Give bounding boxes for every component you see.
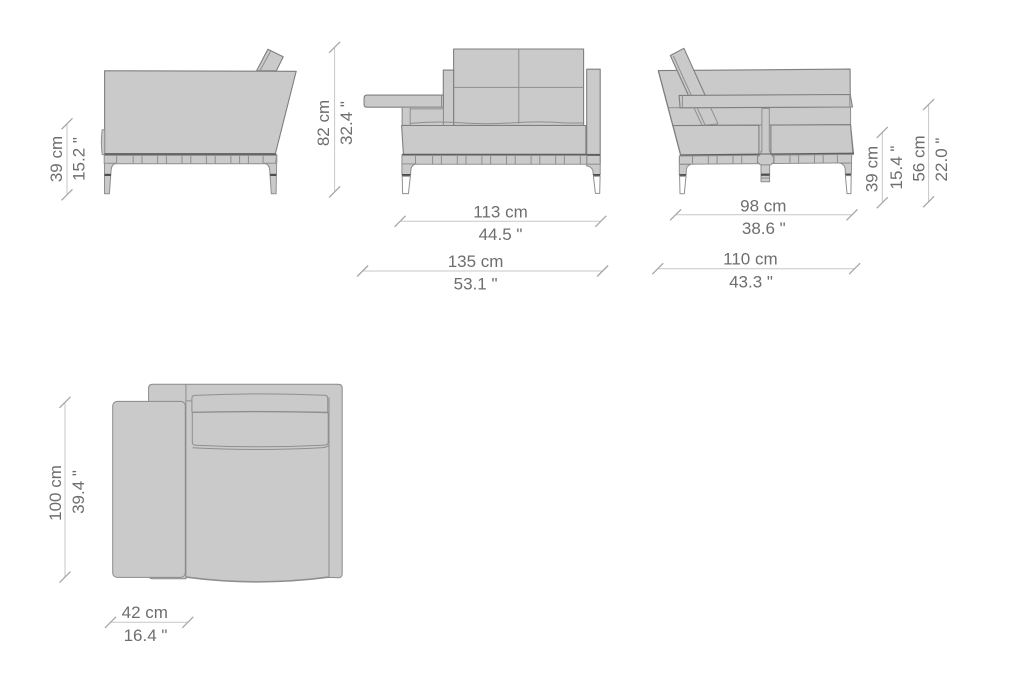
svg-text:110 cm: 110 cm (723, 250, 778, 269)
svg-text:15.4 ": 15.4 " (887, 146, 906, 190)
svg-text:39.4 ": 39.4 " (69, 470, 88, 514)
svg-text:82 cm: 82 cm (314, 100, 333, 146)
svg-text:44.5 ": 44.5 " (479, 225, 523, 244)
svg-text:32.4 ": 32.4 " (337, 101, 356, 145)
svg-text:43.3 ": 43.3 " (729, 273, 773, 292)
svg-text:16.4 ": 16.4 " (124, 626, 168, 645)
svg-text:39 cm: 39 cm (47, 136, 66, 182)
svg-text:56 cm: 56 cm (909, 135, 928, 181)
svg-text:135 cm: 135 cm (448, 252, 504, 271)
svg-text:113 cm: 113 cm (473, 202, 528, 221)
svg-text:39 cm: 39 cm (863, 146, 882, 192)
svg-text:100 cm: 100 cm (46, 465, 65, 521)
svg-text:53.1 ": 53.1 " (454, 274, 498, 293)
svg-text:42 cm: 42 cm (122, 603, 168, 622)
svg-text:15.2 ": 15.2 " (70, 137, 89, 181)
svg-text:22.0 ": 22.0 " (932, 138, 951, 182)
svg-text:98 cm: 98 cm (740, 196, 786, 215)
svg-text:38.6 ": 38.6 " (742, 219, 786, 238)
